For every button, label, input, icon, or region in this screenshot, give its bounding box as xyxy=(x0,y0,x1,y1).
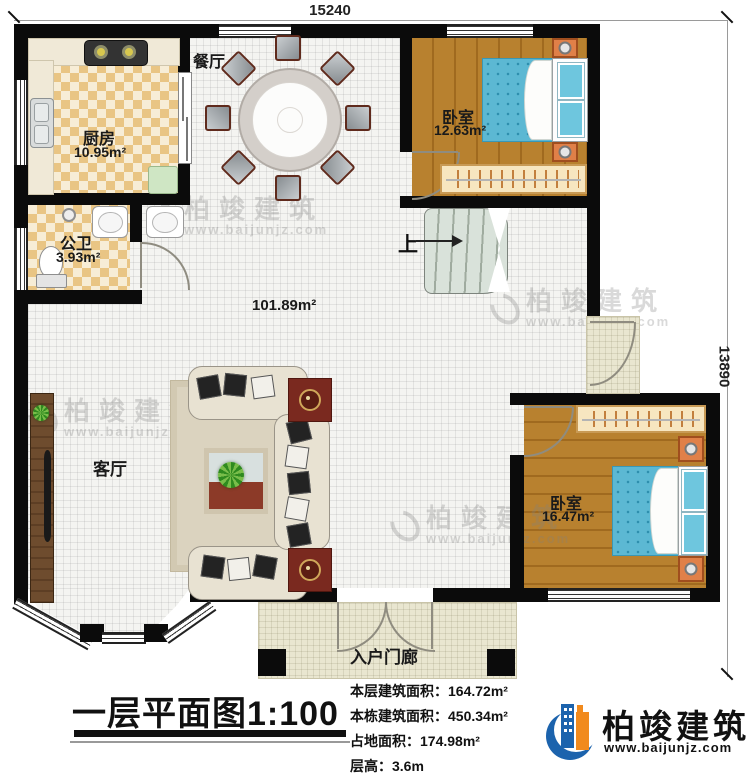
window-kitchen xyxy=(14,80,28,165)
dining-chair xyxy=(345,105,371,131)
bedroom1-wardrobe xyxy=(440,164,587,194)
bedroom1-bed xyxy=(482,58,586,140)
stairs-up-label: 上 xyxy=(398,228,418,257)
wall-bedroom2-top xyxy=(510,393,720,405)
dimension-right-value: 13890 xyxy=(716,331,733,403)
plant-coffee-table xyxy=(218,462,244,488)
dimension-top-value: 15240 xyxy=(285,2,375,19)
plan-title: 一层平面图1:100 xyxy=(72,686,339,735)
window-bedroom2 xyxy=(548,588,690,602)
info-building-area: 本栋建筑面积：450.34m² xyxy=(350,706,508,726)
sofa-pillow xyxy=(227,557,251,581)
title-underline-thin xyxy=(70,741,350,743)
plan-info: 本层建筑面积：164.72m² 本栋建筑面积：450.34m² 占地面积：174… xyxy=(350,681,508,776)
porch-pillar-right xyxy=(487,649,515,676)
wall-bedroom2-left xyxy=(510,455,524,602)
sofa-pillow xyxy=(201,555,226,580)
brand-logo-icon xyxy=(544,696,606,762)
dining-chair xyxy=(205,105,231,131)
dining-chair xyxy=(275,35,301,61)
stove-burner xyxy=(122,45,136,59)
stove-burner xyxy=(94,45,108,59)
label-dining: 餐厅 xyxy=(193,48,225,72)
hall-basin xyxy=(146,206,184,238)
kitchen-sliding-door xyxy=(178,72,192,164)
fridge xyxy=(148,166,178,194)
side-table xyxy=(288,378,332,422)
wall-bathroom-right xyxy=(130,205,142,242)
area-hall: 101.89m² xyxy=(252,297,316,314)
bedroom2-bed xyxy=(612,466,706,554)
plan-title-text: 一层平面图 xyxy=(72,695,247,733)
info-footprint-area: 占地面积：174.98m² xyxy=(350,731,508,751)
shower-head xyxy=(62,208,76,222)
wall-bedroom1-left xyxy=(400,38,412,152)
wall-bedroom2-right xyxy=(706,393,720,602)
sofa-pillow xyxy=(252,554,277,579)
stairs-up-arrow xyxy=(416,240,454,242)
sofa-pillow xyxy=(251,375,276,400)
plan-title-scale: 1:100 xyxy=(247,695,339,733)
sofa-pillow xyxy=(287,471,311,495)
nightstand xyxy=(678,436,704,462)
kitchen-sink xyxy=(30,98,54,148)
area-kitchen: 10.95m² xyxy=(74,144,126,160)
side-table xyxy=(288,548,332,592)
sofa-pillow xyxy=(284,496,309,521)
wall-bedroom1-bottom xyxy=(400,196,600,208)
title-underline-thick xyxy=(74,730,346,737)
stairs-up-arrowhead xyxy=(452,235,463,247)
brand-website: www.baijunjz.com xyxy=(604,740,732,755)
bathroom-basin xyxy=(92,206,128,238)
tv xyxy=(44,450,51,542)
dimension-line-top xyxy=(14,20,727,21)
label-living: 客厅 xyxy=(93,455,127,480)
area-bedroom1: 12.63m² xyxy=(434,122,486,138)
nightstand xyxy=(552,142,578,162)
info-floor-height: 层高：3.6m xyxy=(350,756,508,776)
dining-chairs xyxy=(238,68,338,168)
bedroom2-wardrobe xyxy=(576,405,706,433)
sofa-pillow xyxy=(285,445,310,470)
sofa-pillow xyxy=(223,373,247,397)
plant-small xyxy=(33,405,49,421)
area-bathroom: 3.93m² xyxy=(56,249,100,265)
bay-window-pillar xyxy=(80,624,104,642)
bay-window-band xyxy=(102,632,146,644)
wall-bottom-mid xyxy=(433,588,548,602)
info-floor-area: 本层建筑面积：164.72m² xyxy=(350,681,508,701)
sofa-pillow xyxy=(286,522,311,547)
nightstand xyxy=(678,556,704,582)
label-porch: 入户门廊 xyxy=(350,643,418,668)
window-bathroom xyxy=(14,228,28,290)
area-bedroom2: 16.47m² xyxy=(542,508,594,524)
dimension-tick xyxy=(8,11,21,24)
porch-pillar-left xyxy=(258,649,286,676)
floorplan-page: { "dimensions": { "top": "15240", "right… xyxy=(0,0,750,772)
wall-right-upper xyxy=(587,24,600,318)
dining-chair xyxy=(275,175,301,201)
nightstand xyxy=(552,38,578,58)
sofa-pillow xyxy=(196,374,221,399)
window-bedroom1 xyxy=(447,24,533,38)
wall-bottom-corner xyxy=(690,588,720,602)
wall-bathroom-bottom xyxy=(14,290,142,304)
